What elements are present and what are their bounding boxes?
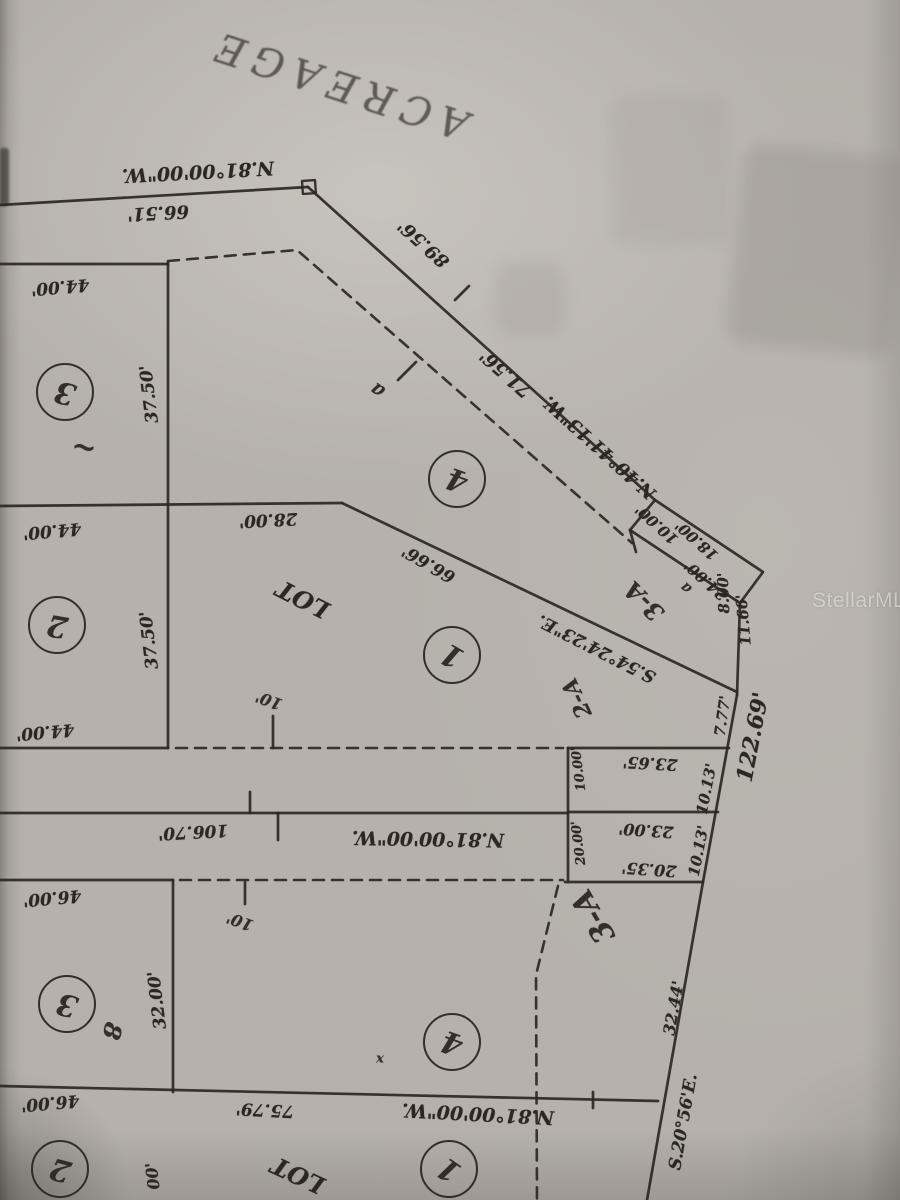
- lot-number: 2: [44, 608, 70, 641]
- lot-number: 1: [435, 637, 468, 673]
- lot-number-circle: 4: [423, 1013, 481, 1071]
- dimension-label: 28.00': [238, 509, 297, 529]
- lot-number-circle: 1: [423, 626, 481, 684]
- tick-mark: [455, 286, 469, 300]
- boundary-line: [0, 503, 342, 506]
- stellar-mls-watermark: StellarMLS: [812, 589, 900, 613]
- lot-number-circle: 1: [420, 1140, 478, 1198]
- bearing-label: N.81°00'00"W.: [352, 827, 505, 849]
- dimension-label: 8.00': [716, 572, 732, 614]
- boundary-line: [0, 1086, 658, 1101]
- lot-number-circle: 3: [38, 975, 96, 1033]
- handwritten-note: x: [376, 1053, 384, 1066]
- dimension-label: 66.51': [127, 201, 190, 222]
- lot-number: 4: [437, 1024, 467, 1059]
- dimension-label: 20.35': [621, 859, 677, 879]
- dimension-label: 44.00': [30, 275, 90, 297]
- lot-number-circle: 2: [28, 596, 86, 654]
- lot-number: 1: [432, 1151, 466, 1188]
- easement-line-dashed: [536, 886, 558, 1200]
- lot-number-circle: 3: [36, 363, 94, 421]
- lot-number: 3: [53, 987, 81, 1021]
- dimension-label: 106.70': [157, 821, 228, 842]
- lot-number: 4: [442, 461, 472, 496]
- dimension-label: 46.00': [20, 1091, 80, 1113]
- scanned-plat-photo: ACREAGEN.81°00'00"W.66.51'89.56'71.56'N.…: [0, 0, 900, 1200]
- dimension-label: 44.00': [15, 720, 75, 742]
- lot-number-circle: 2: [31, 1140, 89, 1198]
- dimension-label: 23.65': [622, 754, 678, 773]
- dimension-label: 75.79': [235, 1099, 294, 1119]
- dimension-label: 11.66': [734, 594, 753, 647]
- dimension-label: 46.00': [22, 886, 82, 908]
- easement-line-dashed: [168, 250, 632, 543]
- lot-number: 3: [51, 375, 79, 409]
- dimension-label: 00': [143, 1162, 162, 1191]
- dimension-label: 44.00': [22, 519, 82, 541]
- lot-number-circle: 4: [428, 450, 486, 508]
- lot-number: 2: [46, 1152, 74, 1186]
- tick-mark: [398, 362, 416, 380]
- dimension-label: 23.00': [618, 820, 674, 840]
- handwritten-note: ~: [69, 430, 99, 464]
